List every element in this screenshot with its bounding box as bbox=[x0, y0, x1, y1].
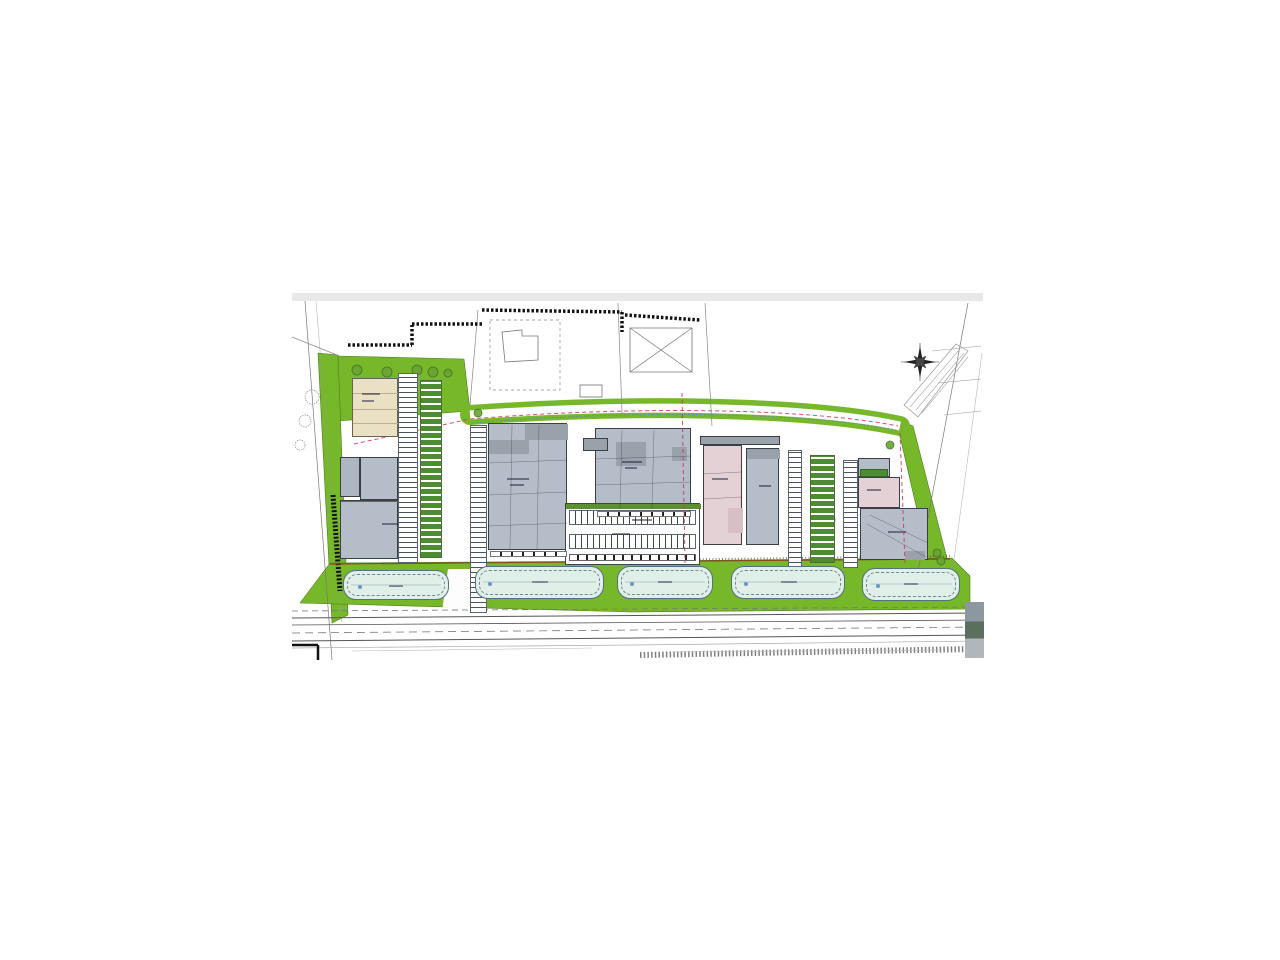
plan-line bbox=[870, 515, 928, 543]
plan-line bbox=[620, 430, 622, 509]
plan-line bbox=[488, 492, 567, 495]
plan-line bbox=[595, 456, 691, 459]
page: { "app": { "name": "architectural-site-p… bbox=[0, 0, 1280, 960]
plan-line bbox=[652, 430, 654, 509]
plan-line bbox=[682, 393, 685, 563]
plan-line bbox=[488, 460, 567, 463]
plan-line bbox=[703, 497, 741, 499]
plan-line bbox=[900, 433, 905, 563]
plan-linework-over bbox=[292, 293, 983, 660]
plan-line bbox=[510, 425, 512, 549]
plan-line bbox=[595, 482, 691, 485]
plan-line bbox=[703, 472, 741, 474]
plan-line bbox=[488, 523, 567, 526]
plan-line bbox=[537, 425, 539, 549]
site-plan-canvas bbox=[292, 293, 983, 660]
plan-line bbox=[867, 524, 926, 557]
